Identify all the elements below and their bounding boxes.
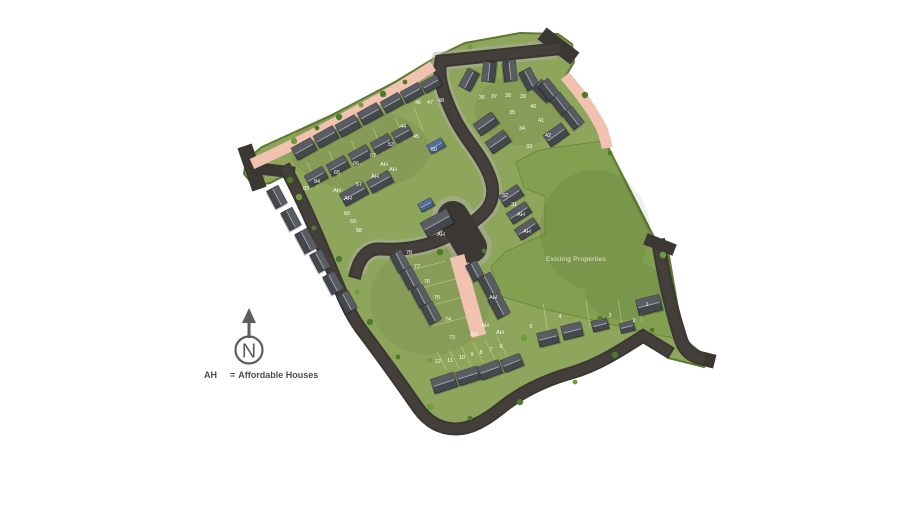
road-east-cap (651, 241, 669, 248)
plot-label: 73 (449, 335, 455, 341)
plot-label: 75 (434, 295, 440, 301)
tree (315, 126, 320, 131)
plot-label: 4 (558, 314, 561, 320)
plot-label: 41 (538, 118, 544, 124)
plot-label: AH (333, 188, 341, 194)
tree (650, 328, 655, 333)
plot-label: 11 (447, 358, 453, 364)
tree (573, 380, 578, 385)
plot-label: 66 (353, 161, 359, 167)
site-plan-map: 44454647485053676665848357AHAHAHAHAH6059… (0, 0, 899, 506)
tree (296, 194, 302, 200)
plot-label: AH (371, 174, 379, 180)
tree (428, 358, 433, 363)
plot-label: AH (389, 167, 397, 173)
plot-label: 74 (445, 317, 451, 323)
plot-label: 58 (356, 228, 362, 234)
compass-letter: N (242, 341, 256, 363)
tree (468, 416, 473, 421)
tree (521, 335, 527, 341)
plot-label: 32 (502, 193, 508, 199)
plot-label: 12 (435, 359, 441, 365)
plot-label: 5 (529, 324, 532, 330)
tree (468, 45, 473, 50)
legend-equals: = (230, 370, 235, 380)
plot-label: 31 (511, 202, 517, 208)
north-arrow-head (242, 308, 256, 323)
tree (380, 91, 386, 97)
plot-label: 47 (427, 100, 433, 106)
house (279, 207, 302, 233)
tree (336, 256, 342, 262)
legend-ah-abbrev: AH (204, 370, 217, 380)
plot-label: 39 (520, 94, 526, 100)
tree (660, 252, 666, 258)
plot-label: 78 (406, 250, 412, 256)
plot-label: AH (523, 229, 531, 235)
plot-label: 36 (479, 95, 485, 101)
plot-label: 2 (632, 318, 635, 324)
plot-label: 76 (424, 279, 430, 285)
tree (582, 92, 588, 98)
plot-label: 10 (459, 355, 465, 361)
tree (355, 290, 360, 295)
plot-label: 8 (479, 350, 482, 356)
plot-label: 7 (489, 347, 492, 353)
tree (367, 319, 373, 325)
tree (396, 355, 401, 360)
plot-label: AH (517, 212, 525, 218)
existing-properties-label: Existing Properties (546, 256, 606, 263)
plot-label: 33 (526, 144, 532, 150)
plot-label: AH (437, 232, 445, 238)
plot-label: 1 (645, 302, 648, 308)
tree (359, 103, 364, 108)
tree (517, 399, 523, 405)
plot-label: 42 (545, 133, 551, 139)
plot-label: 45 (413, 134, 419, 140)
compass: N (236, 308, 263, 364)
tree (437, 249, 443, 255)
plot-label: 83 (303, 186, 309, 192)
plot-label: AH (481, 323, 489, 329)
plot-label: 6 (499, 344, 502, 350)
plot-label: AH (344, 196, 352, 202)
plot-label: 34 (519, 126, 525, 132)
plot-label: 59 (350, 219, 356, 225)
plot-label: 65 (334, 170, 340, 176)
plot-label: 3 (608, 313, 611, 319)
tree (291, 138, 297, 144)
legend: AH=Affordable Houses (204, 370, 318, 380)
plot-label: 53 (388, 142, 394, 148)
plot-label: 35 (509, 110, 515, 116)
plot-label: 38 (505, 93, 511, 99)
legend-label: Affordable Houses (238, 370, 318, 380)
courtyard (453, 217, 471, 247)
plot-label: AH (470, 332, 478, 338)
tree (608, 151, 613, 156)
plot-label: 57 (356, 182, 362, 188)
tree (287, 177, 293, 183)
house (501, 60, 518, 83)
plot-label: 77 (414, 264, 420, 270)
plot-label: 37 (491, 94, 497, 100)
tree (482, 249, 487, 254)
tree (598, 316, 603, 321)
plot-label: 67 (370, 153, 376, 159)
tree (612, 352, 618, 358)
tree (403, 80, 408, 85)
plot-label: 40 (530, 104, 536, 110)
plot-label: 44 (400, 124, 406, 130)
plot-label: 48 (438, 98, 444, 104)
plot-label: 84 (314, 179, 320, 185)
site-plan-page: 44454647485053676665848357AHAHAHAHAH6059… (0, 0, 899, 506)
plot-label: 50 (431, 147, 437, 153)
plot-label: 60 (344, 211, 350, 217)
house (265, 185, 288, 211)
plot-label: AH (496, 330, 504, 336)
plot-label: AH (380, 162, 388, 168)
plot-label: 9 (470, 352, 473, 358)
tree (336, 114, 342, 120)
plot-label: 46 (415, 100, 421, 106)
tree (427, 404, 433, 410)
tree (312, 226, 317, 231)
plot-label: AH (489, 295, 497, 301)
house (481, 60, 498, 83)
